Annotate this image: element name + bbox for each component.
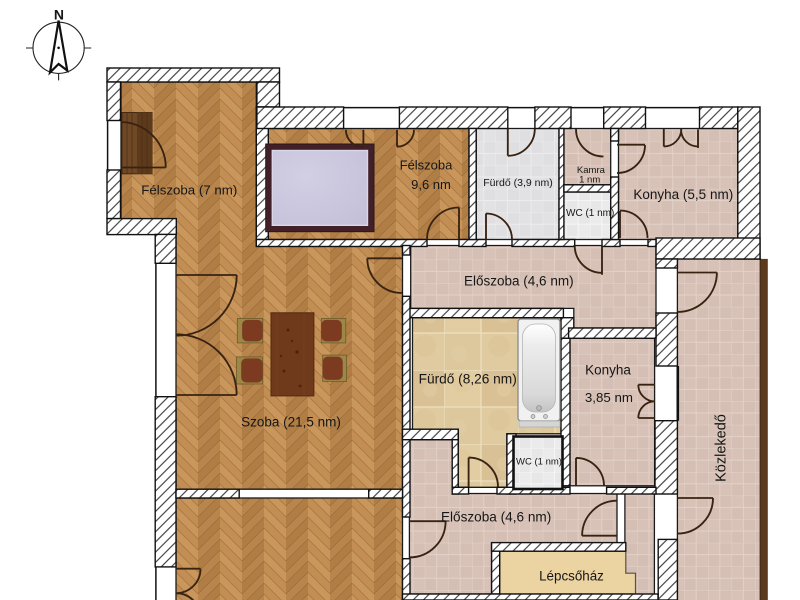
svg-text:Szoba (21,5 nm): Szoba (21,5 nm) <box>241 415 341 430</box>
svg-text:WC (1 nm): WC (1 nm) <box>516 457 562 468</box>
svg-text:WC (1 nm): WC (1 nm) <box>566 208 614 219</box>
svg-text:Közlekedő: Közlekedő <box>714 414 730 482</box>
svg-text:9,6 nm: 9,6 nm <box>411 177 451 192</box>
svg-text:Előszoba (4,6 nm): Előszoba (4,6 nm) <box>464 273 574 288</box>
svg-text:Fürdő (3,9 nm): Fürdő (3,9 nm) <box>483 177 552 189</box>
svg-text:Előszoba (4,6 nm): Előszoba (4,6 nm) <box>441 510 551 525</box>
svg-text:N: N <box>54 7 64 23</box>
svg-text:Lépcsőház: Lépcsőház <box>539 569 604 584</box>
svg-text:1 nm: 1 nm <box>579 175 600 186</box>
svg-text:Konyha: Konyha <box>585 362 631 377</box>
svg-text:Félszoba (7 nm): Félszoba (7 nm) <box>141 182 237 197</box>
svg-text:Fürdő (8,26 nm): Fürdő (8,26 nm) <box>419 372 517 387</box>
svg-text:Félszoba: Félszoba <box>400 158 454 173</box>
svg-text:3,85 nm: 3,85 nm <box>585 390 633 405</box>
svg-text:Konyha (5,5 nm): Konyha (5,5 nm) <box>633 187 733 202</box>
